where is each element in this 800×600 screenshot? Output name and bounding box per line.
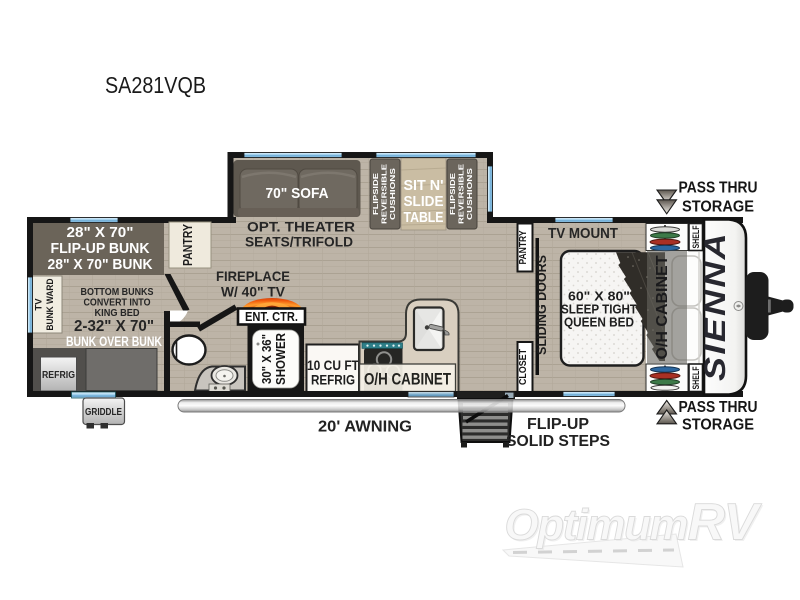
svg-text:2-32" X 70": 2-32" X 70" — [74, 318, 154, 335]
svg-text:70" SOFA: 70" SOFA — [266, 185, 329, 202]
svg-text:30" X 36": 30" X 36" — [260, 334, 274, 384]
svg-text:SIT N': SIT N' — [404, 178, 444, 194]
svg-text:BUNK WARD: BUNK WARD — [45, 278, 56, 330]
svg-text:CLOSET: CLOSET — [518, 349, 529, 385]
svg-text:28" X 70": 28" X 70" — [67, 225, 134, 241]
svg-text:SOLID STEPS: SOLID STEPS — [506, 433, 610, 450]
svg-text:PASS THRU: PASS THRU — [679, 180, 758, 197]
svg-text:SLIDE: SLIDE — [404, 194, 444, 210]
svg-text:OPT. THEATER: OPT. THEATER — [247, 219, 355, 235]
svg-text:20' AWNING: 20' AWNING — [318, 419, 412, 436]
svg-text:PANTRY: PANTRY — [180, 224, 195, 266]
svg-text:RV: RV — [688, 494, 763, 552]
svg-text:CUSHIONS: CUSHIONS — [465, 168, 474, 220]
svg-text:STORAGE: STORAGE — [682, 199, 754, 216]
svg-text:TABLE: TABLE — [404, 210, 444, 226]
svg-text:SEATS/TRIFOLD: SEATS/TRIFOLD — [245, 234, 353, 250]
svg-text:28" X 70" BUNK: 28" X 70" BUNK — [48, 257, 153, 273]
svg-text:CUSHIONS: CUSHIONS — [388, 168, 397, 220]
svg-text:FLIP-UP: FLIP-UP — [527, 416, 589, 433]
svg-text:REFRIG: REFRIG — [42, 370, 75, 381]
svg-text:STORAGE: STORAGE — [682, 417, 754, 434]
svg-text:TV MOUNT: TV MOUNT — [548, 225, 618, 242]
svg-text:SIENNA: SIENNA — [699, 231, 732, 381]
svg-text:TV: TV — [34, 298, 45, 311]
svg-text:W/ 40" TV: W/ 40" TV — [221, 284, 286, 300]
svg-text:ENT. CTR.: ENT. CTR. — [245, 310, 298, 324]
svg-text:SLIDING DOORS: SLIDING DOORS — [534, 255, 549, 355]
svg-text:GRIDDLE: GRIDDLE — [85, 407, 122, 418]
svg-text:BUNK OVER BUNK: BUNK OVER BUNK — [66, 334, 162, 349]
svg-text:REFRIG: REFRIG — [311, 372, 355, 388]
svg-text:Optimum: Optimum — [505, 501, 688, 550]
svg-text:O/H CABINET: O/H CABINET — [654, 255, 671, 359]
svg-text:QUEEN BED: QUEEN BED — [564, 315, 634, 330]
svg-text:SHOWER: SHOWER — [274, 333, 288, 385]
svg-text:PASS THRU: PASS THRU — [679, 399, 758, 416]
svg-text:SA281VQB: SA281VQB — [105, 72, 206, 98]
svg-text:FIREPLACE: FIREPLACE — [216, 268, 290, 284]
svg-text:PANTRY: PANTRY — [518, 230, 529, 264]
svg-text:FLIP-UP BUNK: FLIP-UP BUNK — [51, 241, 151, 257]
svg-text:O/H CABINET: O/H CABINET — [364, 370, 451, 389]
